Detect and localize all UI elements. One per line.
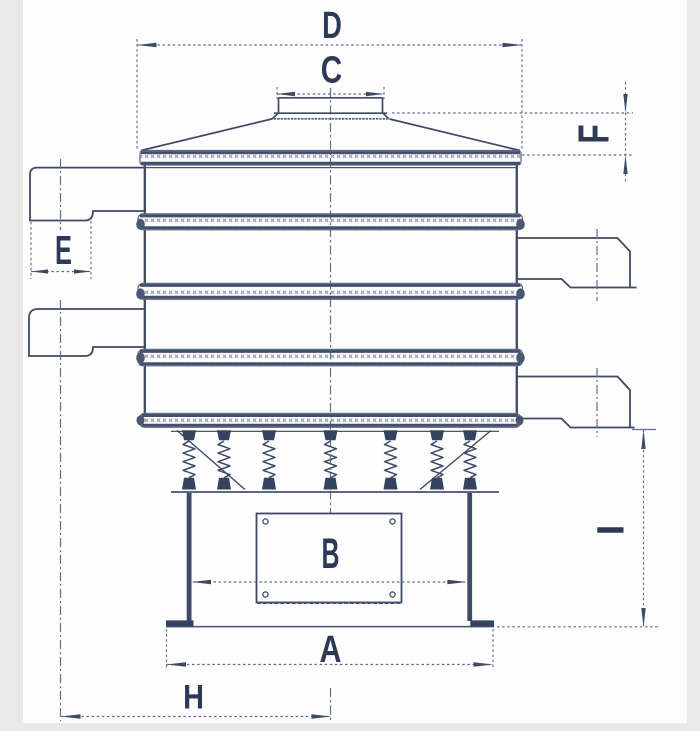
svg-text:E: E [55,228,72,274]
svg-text:D: D [322,5,342,47]
svg-text:H: H [183,677,204,716]
svg-text:F: F [569,124,618,143]
svg-text:A: A [320,629,342,671]
svg-text:I: I [591,525,633,536]
svg-text:B: B [321,530,339,578]
svg-text:C: C [321,49,342,91]
